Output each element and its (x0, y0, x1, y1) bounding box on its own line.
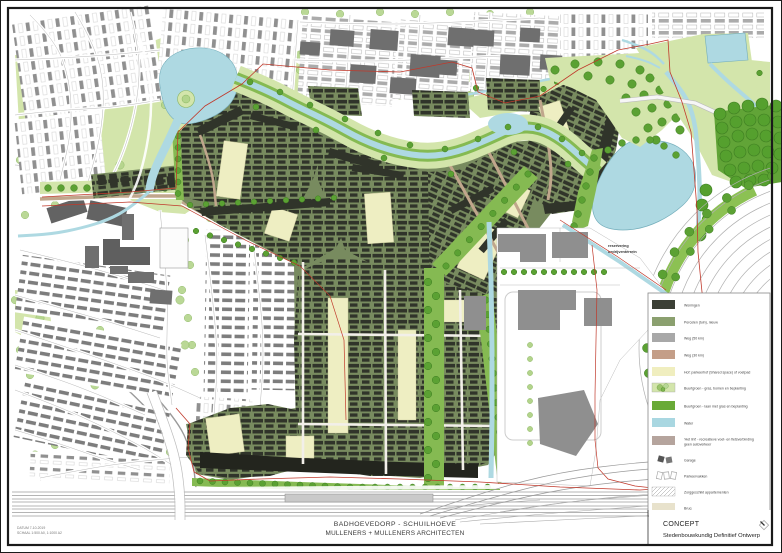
svg-text:Percelen (tuin), nieuw: Percelen (tuin), nieuw (684, 321, 718, 325)
svg-text:DATUM 7-10-2019: DATUM 7-10-2019 (17, 526, 45, 530)
svg-text:'Het lint' - recreatieve voet-: 'Het lint' - recreatieve voet- en fietsv… (684, 438, 754, 442)
svg-text:Woningen: Woningen (684, 304, 700, 308)
svg-text:Hof: parkeerhof (Shared space): Hof: parkeerhof (Shared space) of voetpa… (684, 371, 750, 375)
svg-text:Parkeervakken: Parkeervakken (684, 475, 707, 479)
svg-text:Weg (50 km): Weg (50 km) (684, 337, 704, 341)
svg-text:BADHOEVEDORP - SCHUILHOEVE: BADHOEVEDORP - SCHUILHOEVE (334, 521, 457, 528)
svg-text:Garage: Garage (684, 459, 696, 463)
svg-text:Stedenbouwkundig Definitief On: Stedenbouwkundig Definitief Ontwerp (663, 533, 760, 539)
svg-text:Brug: Brug (684, 507, 691, 511)
svg-text:Water: Water (684, 422, 694, 426)
svg-text:Buurtgroen - gras, bomen en be: Buurtgroen - gras, bomen en beplanting (684, 387, 746, 391)
svg-text:MULLENERS + MULLENERS ARCHITEC: MULLENERS + MULLENERS ARCHITECTEN (326, 530, 465, 537)
svg-text:reservering: reservering (608, 244, 629, 248)
svg-text:CONCEPT: CONCEPT (663, 521, 700, 528)
svg-text:SCHAAL 1:500 A0, 1:1000 A2: SCHAAL 1:500 A0, 1:1000 A2 (17, 531, 62, 535)
svg-text:Zorggeschikt appartementen: Zorggeschikt appartementen (684, 491, 729, 495)
svg-text:geen autoverkeer: geen autoverkeer (684, 443, 712, 447)
svg-text:Weg (30 km): Weg (30 km) (684, 354, 704, 358)
svg-text:Buurtgroen - laan met gras en: Buurtgroen - laan met gras en beplanting (684, 405, 748, 409)
